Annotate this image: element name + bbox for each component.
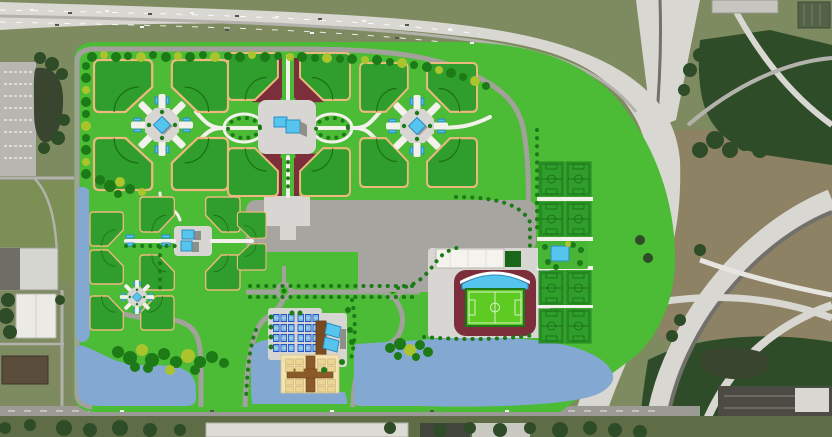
cabana — [328, 380, 336, 386]
tree — [224, 52, 232, 60]
cabana — [296, 380, 304, 386]
tennis-court — [273, 324, 280, 332]
tree — [82, 62, 90, 70]
tennis-court — [288, 324, 295, 332]
field-cluster-plaza — [120, 280, 154, 314]
tree — [190, 365, 200, 375]
vehicle — [430, 410, 434, 412]
tennis-court — [305, 324, 312, 332]
tree — [674, 314, 686, 326]
tree — [678, 84, 690, 96]
tree — [347, 327, 353, 333]
tree — [45, 57, 59, 71]
tree — [394, 352, 402, 360]
parking-lot — [358, 252, 428, 292]
tree — [158, 348, 170, 360]
tree — [210, 52, 220, 62]
entry-plaza-stem — [280, 226, 296, 240]
tennis-court — [298, 334, 305, 342]
warehouse-roof-dark — [0, 248, 20, 290]
tree — [100, 51, 108, 59]
tree — [736, 133, 754, 151]
tree — [136, 52, 146, 62]
tree — [565, 241, 571, 247]
tree — [111, 52, 121, 62]
tree — [482, 82, 490, 90]
soccer-pitch — [566, 162, 591, 196]
vehicle — [235, 15, 239, 17]
cabana — [296, 359, 304, 365]
tree — [433, 423, 447, 437]
tree — [95, 175, 105, 185]
tree — [174, 52, 182, 60]
tree — [82, 110, 90, 118]
parking-lot — [0, 62, 36, 176]
tree — [56, 420, 72, 436]
tree — [570, 242, 576, 248]
clubhouse-building — [286, 120, 300, 133]
vehicle — [362, 20, 366, 22]
entry-plaza — [264, 196, 310, 226]
tree — [82, 158, 90, 166]
tree — [386, 58, 394, 66]
tree — [112, 420, 128, 436]
tree — [136, 344, 148, 356]
brown-building — [2, 356, 48, 384]
tree — [38, 142, 50, 154]
tree — [174, 424, 186, 436]
tree — [321, 367, 327, 373]
tree — [410, 61, 418, 69]
soccer-pitch — [539, 202, 564, 236]
tree — [577, 260, 583, 266]
tree — [81, 169, 91, 179]
tree — [464, 422, 476, 434]
clubhouse-building — [182, 230, 194, 239]
roundabout-tree — [282, 289, 287, 294]
tree — [545, 259, 551, 265]
building-shadow — [340, 329, 346, 349]
cabana — [286, 380, 294, 386]
tree — [82, 86, 90, 94]
tree — [219, 358, 229, 368]
tennis-court — [298, 344, 305, 352]
tree — [206, 351, 218, 363]
field-cluster-plaza — [386, 95, 448, 157]
tree — [58, 114, 70, 126]
tree — [125, 184, 135, 194]
cabana — [328, 359, 336, 365]
tree — [683, 63, 697, 77]
soccer-pitch — [566, 202, 591, 236]
tree — [493, 423, 507, 437]
tree — [269, 325, 274, 330]
tree — [34, 52, 46, 64]
tree — [165, 365, 175, 375]
clubhouse-building — [274, 117, 287, 127]
cabana — [296, 387, 304, 393]
cabana — [328, 366, 336, 372]
tree — [422, 62, 432, 72]
clubhouse-building — [181, 241, 192, 251]
tree — [446, 68, 456, 78]
tree — [635, 235, 645, 245]
tree — [384, 422, 396, 434]
tree — [143, 363, 153, 373]
cabana — [286, 359, 294, 365]
vehicle — [55, 24, 59, 26]
tennis-court — [273, 344, 280, 352]
landscape-block — [505, 251, 521, 267]
tree — [81, 121, 91, 131]
tree — [347, 54, 357, 64]
tree — [114, 190, 122, 198]
tennis-court — [281, 324, 288, 332]
tree — [138, 188, 146, 196]
soccer-pitch — [539, 309, 564, 343]
tree — [87, 52, 97, 62]
tennis-court — [273, 334, 280, 342]
vehicle — [330, 410, 334, 412]
tree — [297, 52, 307, 62]
vehicle — [310, 32, 314, 34]
tree — [269, 315, 274, 320]
vehicle — [140, 26, 144, 28]
tree — [24, 419, 36, 431]
cabana — [286, 366, 294, 372]
tree — [199, 51, 207, 59]
vehicle — [68, 12, 72, 14]
tree — [752, 142, 768, 158]
vehicle — [148, 13, 152, 15]
tennis-court — [298, 324, 305, 332]
tree — [693, 48, 707, 62]
tree — [372, 55, 382, 65]
tree — [553, 264, 559, 270]
cabana — [318, 380, 326, 386]
cabana — [318, 359, 326, 365]
tree — [361, 56, 369, 64]
tree — [666, 330, 678, 342]
tree — [1, 293, 15, 307]
tree — [322, 53, 332, 63]
vehicle — [405, 24, 409, 26]
tree — [56, 68, 68, 80]
tennis-court-block — [798, 2, 830, 28]
tree — [412, 353, 420, 361]
cabana — [296, 366, 304, 372]
tree — [339, 359, 345, 365]
west-canal-pond — [76, 187, 90, 342]
tree — [269, 335, 274, 340]
tennis-court — [281, 314, 288, 322]
tree — [55, 295, 65, 305]
tree — [161, 52, 171, 62]
white-building — [795, 388, 829, 412]
tree — [115, 177, 125, 187]
tennis-court — [273, 314, 280, 322]
tree — [345, 307, 351, 313]
tennis-court — [281, 344, 288, 352]
tree — [578, 247, 584, 253]
tree — [248, 51, 256, 59]
tree — [81, 145, 91, 155]
tree — [397, 58, 407, 68]
tree — [385, 343, 395, 353]
tennis-court — [288, 344, 295, 352]
vehicle — [120, 410, 124, 412]
vehicle — [225, 29, 229, 31]
screenshot-canvas — [0, 0, 832, 437]
tree — [104, 180, 116, 192]
tree — [394, 338, 406, 350]
tree — [260, 52, 270, 62]
tennis-court — [281, 334, 288, 342]
tree — [51, 131, 65, 145]
swimming-pool — [551, 246, 569, 261]
tree — [81, 97, 91, 107]
soccer-pitch — [539, 271, 564, 305]
tree — [415, 340, 425, 350]
tree — [349, 339, 355, 345]
soccer-pitch — [566, 309, 591, 343]
vehicle — [395, 37, 399, 39]
tree — [583, 421, 597, 435]
tree — [470, 76, 480, 86]
tree — [112, 346, 124, 358]
tennis-court — [305, 344, 312, 352]
tree — [181, 349, 195, 363]
tree — [269, 345, 274, 350]
cabana — [328, 387, 336, 393]
tree — [524, 422, 536, 434]
warehouse-roof — [206, 423, 408, 437]
tree — [290, 311, 295, 316]
vehicle — [190, 12, 194, 14]
tree — [643, 253, 653, 263]
vehicle — [470, 42, 474, 44]
tree — [706, 131, 724, 149]
tree — [694, 244, 706, 256]
tree — [3, 325, 17, 339]
tree — [124, 52, 132, 60]
tree — [143, 423, 157, 437]
vehicle — [210, 410, 214, 412]
vehicle — [105, 10, 109, 12]
tennis-court — [305, 314, 312, 322]
tree — [149, 51, 157, 59]
tree — [130, 362, 140, 372]
vehicle — [448, 28, 452, 30]
vehicle — [275, 16, 279, 18]
event-building — [436, 249, 504, 268]
tree — [298, 311, 303, 316]
field-cluster-plaza — [131, 94, 193, 156]
master-plan-map — [0, 0, 832, 437]
tennis-court — [288, 334, 295, 342]
tree — [459, 73, 467, 81]
tree — [286, 53, 294, 61]
soccer-pitch — [539, 162, 564, 196]
vehicle — [505, 410, 509, 412]
tree — [722, 142, 738, 158]
vehicle — [318, 18, 322, 20]
tree — [608, 423, 622, 437]
vehicle — [30, 9, 34, 11]
tennis-court — [305, 334, 312, 342]
tree — [185, 52, 195, 62]
tree — [82, 134, 90, 142]
tree — [336, 55, 344, 63]
cabana — [286, 387, 294, 393]
tree — [542, 244, 548, 250]
tree — [311, 54, 319, 62]
building-roof — [712, 0, 778, 13]
tree — [435, 66, 443, 74]
tree — [81, 73, 91, 83]
cabana — [318, 387, 326, 393]
tree — [274, 52, 282, 60]
tree — [692, 142, 708, 158]
tree — [235, 52, 245, 62]
soccer-pitch — [566, 271, 591, 305]
tree — [83, 423, 97, 437]
tree — [423, 347, 433, 357]
